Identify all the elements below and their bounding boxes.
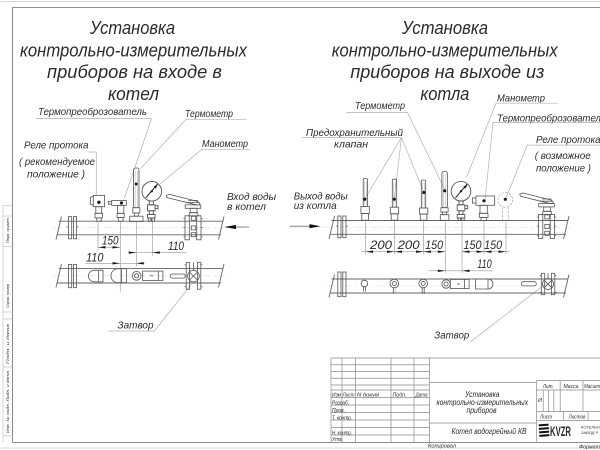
svg-text:Справ. номер: Справ. номер xyxy=(6,284,10,308)
svg-text:ЗАВОД Р: ЗАВОД Р xyxy=(581,430,599,435)
svg-text:Затвор: Затвор xyxy=(434,331,469,342)
svg-text:в котел: в котел xyxy=(227,202,266,213)
svg-text:Пров.: Пров. xyxy=(332,408,345,414)
svg-text:приборов на входе в: приборов на входе в xyxy=(47,62,222,82)
svg-text:Лит.: Лит. xyxy=(542,384,554,390)
svg-text:110: 110 xyxy=(477,257,492,271)
svg-text:Установка: Установка xyxy=(89,18,175,38)
svg-text:200: 200 xyxy=(397,238,420,252)
svg-text:Подп. и дата: Подп. и дата xyxy=(6,324,10,364)
svg-text:Подп.: Подп. xyxy=(393,392,407,398)
svg-text:200: 200 xyxy=(369,238,392,252)
svg-text:Термопреоброзователь: Термопреоброзователь xyxy=(38,106,147,118)
svg-text:Утв.: Утв. xyxy=(331,437,343,443)
svg-text:Инв. № подл. Подп. и дата: Инв. № подл. Подп. и дата xyxy=(6,371,10,433)
svg-text:Лист: Лист xyxy=(342,392,355,398)
svg-text:контрольно-измерительных: контрольно-измерительных xyxy=(20,41,248,61)
svg-text:Перв. примен.: Перв. примен. xyxy=(6,217,10,243)
svg-text:Затвор: Затвор xyxy=(118,321,154,332)
svg-text:150: 150 xyxy=(102,234,119,248)
svg-text:110: 110 xyxy=(168,239,184,253)
svg-text:положение ): положение ) xyxy=(27,170,85,181)
svg-text:Реле протока: Реле протока xyxy=(536,135,600,146)
svg-text:котел: котел xyxy=(108,84,159,104)
svg-text:Н. контр.: Н. контр. xyxy=(332,430,352,436)
svg-text:контрольно-измерительных: контрольно-измерительных xyxy=(332,41,559,61)
svg-text:110: 110 xyxy=(86,250,104,264)
svg-text:Установка: Установка xyxy=(401,18,488,38)
svg-text:Термометр: Термометр xyxy=(185,109,233,120)
svg-text:И: И xyxy=(538,398,542,404)
svg-text:Копировал: Копировал xyxy=(428,444,457,450)
svg-text:приборов на выходе из: приборов на выходе из xyxy=(350,62,544,82)
svg-text:Т. контр.: Т. контр. xyxy=(332,415,352,421)
svg-text:Манометр: Манометр xyxy=(202,139,248,150)
svg-text:Лист: Лист xyxy=(539,414,552,420)
svg-text:из котла: из котла xyxy=(294,201,337,212)
svg-text:КОТЕЛЬН: КОТЕЛЬН xyxy=(581,425,600,430)
svg-text:150: 150 xyxy=(484,238,502,252)
svg-text:котла: котла xyxy=(420,84,469,104)
svg-text:Реле протока: Реле протока xyxy=(24,141,89,152)
svg-text:Термометр: Термометр xyxy=(355,101,405,112)
svg-text:150: 150 xyxy=(464,238,482,252)
svg-text:Дата: Дата xyxy=(415,392,428,398)
svg-text:( рекомендуемое: ( рекомендуемое xyxy=(19,157,95,168)
svg-text:KVZR: KVZR xyxy=(550,424,571,439)
svg-text:клапан: клапан xyxy=(334,140,368,151)
svg-text:Разраб.: Разраб. xyxy=(332,400,349,406)
svg-text:( возможное: ( возможное xyxy=(535,151,591,162)
svg-text:N докум: N докум xyxy=(357,392,379,398)
svg-text:приборов: приборов xyxy=(467,406,497,415)
svg-text:Изм: Изм xyxy=(332,392,341,398)
svg-text:положение ): положение ) xyxy=(536,164,591,175)
svg-text:Масшт: Масшт xyxy=(584,384,600,390)
svg-text:150: 150 xyxy=(425,238,443,252)
svg-text:Масса: Масса xyxy=(564,384,579,390)
svg-text:Формат: Формат xyxy=(579,444,600,450)
svg-text:Листов: Листов xyxy=(568,414,586,420)
svg-text:Котел водогрейный КВ: Котел водогрейный КВ xyxy=(452,426,527,436)
